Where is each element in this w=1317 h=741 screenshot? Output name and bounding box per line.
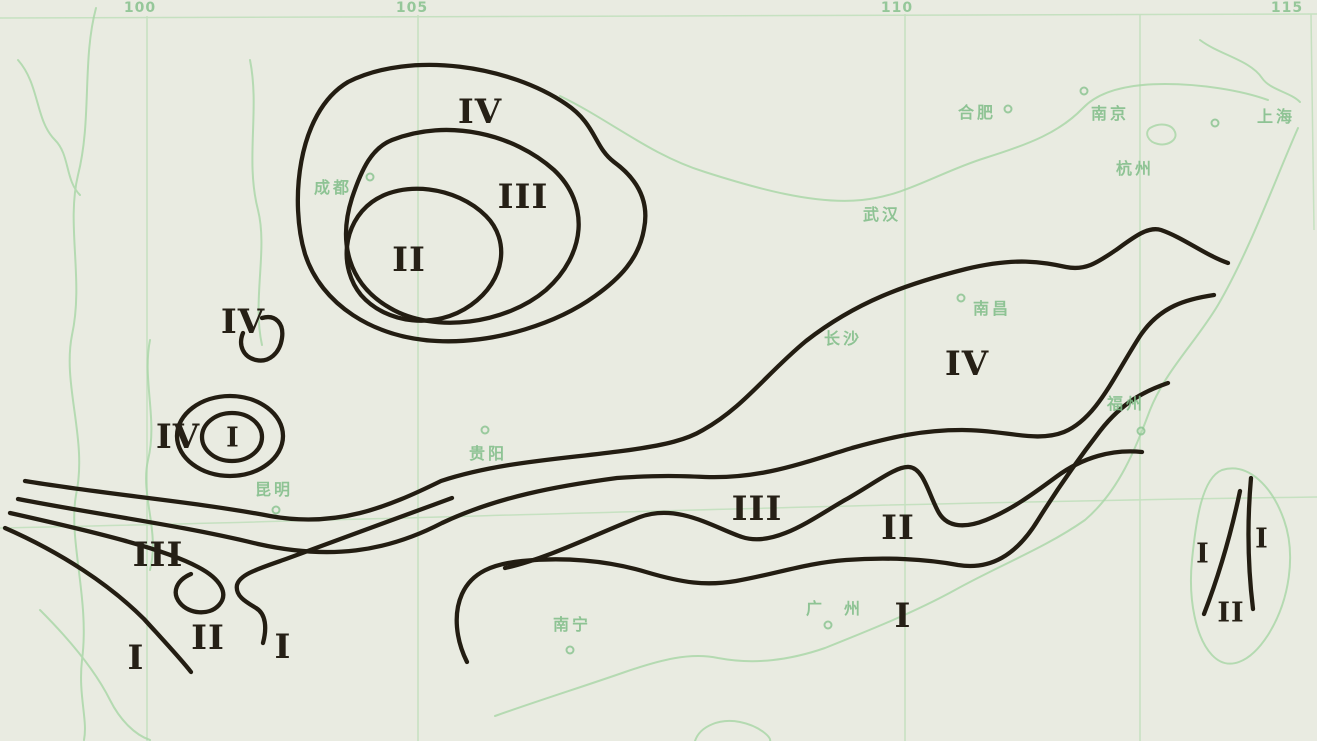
zone-label-II: II	[881, 511, 915, 545]
city-label: 成都	[314, 174, 352, 198]
zone-label-II: II	[392, 243, 426, 277]
city-marker	[272, 506, 281, 515]
city-marker	[1211, 119, 1220, 128]
zone-label-I: I	[275, 630, 292, 664]
zone-label-III: III	[732, 492, 783, 526]
meridian-label-100: 100	[124, 0, 156, 16]
city-label: 昆明	[255, 476, 293, 500]
city-label: 福州	[1107, 390, 1145, 414]
zone-label-IV: IV	[945, 347, 989, 381]
city-marker	[957, 294, 966, 303]
city-label: 南京	[1091, 100, 1129, 124]
city-label: 贵阳	[469, 440, 507, 464]
city-label: 南昌	[973, 295, 1011, 319]
zone-label-III: III	[498, 180, 549, 214]
city-marker	[824, 621, 833, 630]
zone-label-IV: IV	[221, 305, 265, 339]
city-label: 杭州	[1116, 155, 1154, 179]
city-label: 南宁	[553, 611, 591, 635]
city-marker	[366, 173, 375, 182]
city-label: 上海	[1257, 103, 1295, 127]
city-marker	[566, 646, 575, 655]
meridian-label-115: 115	[1271, 0, 1303, 16]
zone-label-I: I	[226, 425, 240, 452]
city-label: 长沙	[824, 325, 862, 349]
zone-label-IV: IV	[458, 95, 502, 129]
taiwan-contour-east	[1249, 478, 1253, 609]
zone-label-I: I	[128, 641, 145, 675]
contour-hairpin	[237, 498, 452, 643]
city-marker	[481, 426, 490, 435]
zone-label-I: I	[1196, 541, 1210, 568]
meridian-label-110: 110	[881, 0, 913, 16]
zone-label-IV: IV	[156, 420, 200, 454]
zone-label-II: II	[191, 621, 225, 655]
zone-label-I: I	[1255, 526, 1269, 553]
zone-label-II: II	[1217, 600, 1244, 627]
city-label: 武汉	[863, 201, 901, 225]
meridian-label-105: 105	[396, 0, 428, 16]
city-marker	[1080, 87, 1089, 96]
city-marker	[1137, 427, 1146, 436]
city-label: 合肥	[958, 99, 996, 123]
zone-label-I: I	[895, 599, 912, 633]
city-label: 广州	[806, 595, 882, 619]
sichuan-ring-middle	[346, 130, 579, 323]
zone-label-III: III	[133, 538, 184, 572]
zoning-map: IVIIIIIIVIVIIVIIIIIIIIIIIIIIIII成都合肥南京上海杭…	[0, 0, 1317, 741]
city-marker	[1004, 105, 1013, 114]
